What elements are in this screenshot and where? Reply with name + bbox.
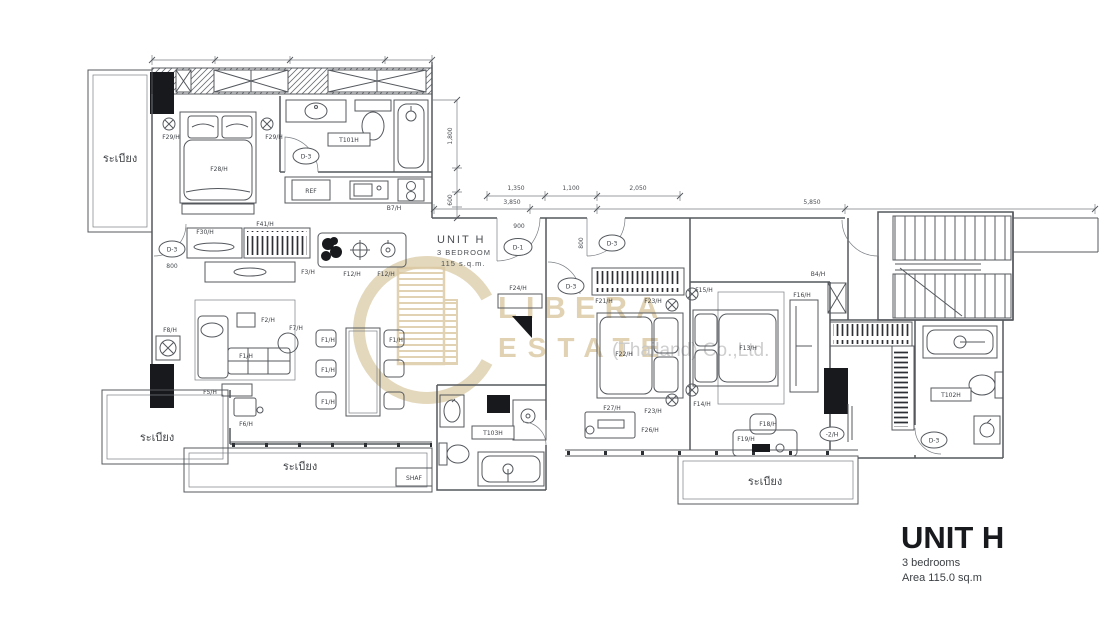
stove-icon [398,179,424,201]
plant-icon [321,237,342,261]
sprinkler-icon [261,118,273,130]
svg-text:T101H: T101H [338,137,359,144]
balcony-bottom-center: ระเบียง [184,442,432,492]
door-tag: D-1 [504,239,532,256]
balcony-label: ระเบียง [103,152,137,165]
unit-label-area: 115 s.q.m. [441,259,485,268]
dim-label: 1,350 [507,185,524,192]
sprinkler-label: F29/H [162,134,180,141]
closet-hangers-icon [830,322,912,346]
dim-label: 1,100 [562,185,579,192]
column [150,72,174,114]
door-tag: D-3 [293,148,319,164]
stairs-icon [893,216,1011,318]
kitchen-island [318,233,406,267]
unit-label-name: UNIT H [437,234,485,246]
fan-coil-label: F8/H [163,327,177,334]
living-room: F3/H F1/H F2/H F7/H F5/H F6/H F8/H [156,262,315,428]
chair-label: F19/H [737,436,755,443]
shoe-cabinet-label: F24/H [509,285,527,292]
wardrobe-icon [790,300,818,392]
fixture-tag: T101H [328,133,370,146]
door-tag: D-3 [159,241,185,257]
side-table-label: F5/H [203,389,217,396]
unit-area: Area 115.0 sq.m [902,572,982,584]
svg-text:SHAF: SHAF [406,475,422,482]
dim-label: 1,800 [447,127,454,144]
hanger-label: F21/H [595,298,613,305]
sprinkler-icon [163,118,175,130]
bathroom-1: T101H D-3 [285,100,428,172]
armchair-label: F7/H [289,325,303,332]
svg-text:D-3: D-3 [929,438,940,445]
balcony-label: ระเบียง [140,431,174,444]
window-top-3 [328,70,426,92]
cart-icon [234,398,263,416]
staircase [842,212,1013,320]
dim-label: 5,850 [803,199,820,206]
floor-plan-page: LIBERA ESTATE (Thailand) Co.,Ltd. [0,0,1110,623]
balcony-bottom-right: ระเบียง [565,450,858,504]
shower-icon [513,400,546,440]
dim-door: 800 [166,263,178,270]
coffee-table-icon [237,313,255,327]
wardrobe-label: F30/H [196,229,214,236]
closet-hangers-icon [592,268,684,295]
coffee-table-label: F2/H [261,317,275,324]
hanger-label: F41/H [256,221,274,228]
unit-bedrooms: 3 bedrooms [902,557,961,569]
master-bathroom: T102H D-3 [915,326,1003,454]
bathtub-icon [394,100,428,172]
svg-text:D-3: D-3 [607,241,618,248]
column [824,368,848,414]
bathroom-3: T103H SHAF [396,395,546,486]
window-tag: -2/H [820,427,844,441]
duct-label: B4/H [811,271,825,278]
desk-label: F18/H [759,421,777,428]
closet-hangers-icon [892,346,914,430]
dim-label: 3,850 [503,199,520,206]
bed-icon [180,112,256,214]
sink-icon [286,100,346,122]
toilet-icon [439,443,469,465]
sprinkler-icon [666,394,678,406]
sofa-label: F1/H [239,353,253,360]
island-hob-icon [381,240,395,257]
title-block: UNIT H 3 bedrooms Area 115.0 sq.m [901,520,1004,584]
rug [195,300,295,380]
column [150,364,174,408]
bed2-label: F22/H [615,351,633,358]
sprinkler-label: F23/H [644,408,662,415]
fixture-tag: T102H [931,388,971,401]
dim-entry: 900 [513,223,525,230]
shaft: SHAF [396,468,432,486]
balcony-label: ระเบียง [748,475,782,488]
sprinkler-label: F15/H [695,287,713,294]
svg-text:D-3: D-3 [566,284,577,291]
dresser-icon [585,412,635,438]
bathtub-icon [923,326,997,358]
unit-title: UNIT H [901,520,1004,555]
chair-label: F1/H [321,337,335,344]
wardrobe-label: F16/H [793,292,811,299]
svg-text:D-3: D-3 [167,247,178,254]
chair-label: F1/H [321,367,335,374]
sprinkler-label: F29/H [265,134,283,141]
chair-label: F1/H [321,399,335,406]
window-top-2 [214,70,288,92]
balcony-top-left: ระเบียง [88,70,152,232]
closet-hangers-icon [244,228,310,258]
dresser-label: F27/H [603,405,621,412]
toilet-icon [969,372,1003,398]
chair-label: F1/H [389,337,403,344]
window-top-1 [176,70,191,92]
sprinkler-label: F23/H [644,298,662,305]
tv-label: F3/H [301,269,315,276]
watermark-building-icon [398,268,457,364]
bathtub-icon [478,452,544,486]
floor-plan-drawing: LIBERA ESTATE (Thailand) Co.,Ltd. [0,0,1110,623]
svg-text:T102H: T102H [940,392,961,399]
balcony-label: ระเบียง [283,460,317,473]
fan-coil-icon [156,336,180,360]
svg-text:D-1: D-1 [513,245,524,252]
dim-door: 800 [578,237,585,249]
island-label: F12/H [343,271,361,278]
svg-text:REF: REF [305,188,317,195]
column [487,395,510,413]
island-label: F12/H [377,271,395,278]
fixture-tag: T103H [472,426,514,439]
fridge-icon: REF [292,180,330,200]
tv-console-icon [205,262,295,282]
kitchen-sink-icon [350,181,388,199]
dim-label: 2,050 [629,185,646,192]
svg-text:-2/H: -2/H [826,432,839,439]
counter-label: B7/H [387,205,401,212]
sprinkler-label: F14/H [693,401,711,408]
island-faucet-icon [350,240,370,260]
svg-text:D-3: D-3 [301,154,312,161]
bedroom-1: F28/H F29/H F29/H F30/H F41/H D-3 800 [154,112,310,270]
door-tag: D-3 [558,278,584,294]
sprinkler-icon [666,299,678,311]
dresser-label: F26/H [641,427,659,434]
door-tag: D-3 [599,235,625,251]
door-tag: D-3 [921,432,947,448]
sink-icon [974,416,1000,444]
cart-label: F6/H [239,421,253,428]
bedroom-3: F13/H F16/H B4/H F18/H F19/H -2/H [693,271,852,456]
dim-label: 600 [447,194,454,206]
svg-text:T103H: T103H [482,430,503,437]
sofa-icon [198,316,290,378]
bed1-label: F28/H [210,166,228,173]
bed3-label: F13/H [739,345,757,352]
unit-label-type: 3 BEDROOM [437,248,491,257]
